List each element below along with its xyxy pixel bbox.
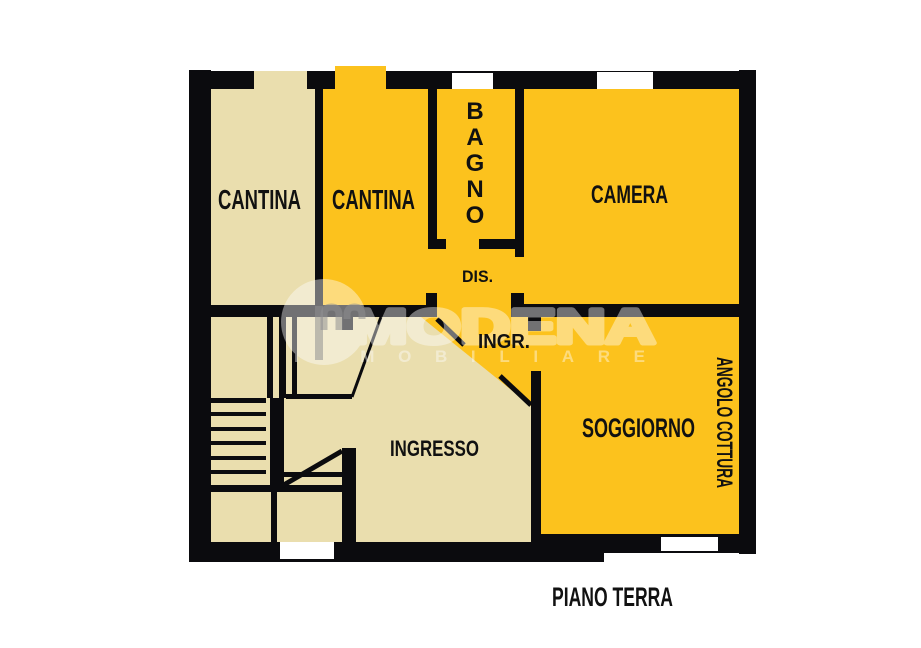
- svg-text:SOGGIORNO: SOGGIORNO: [582, 413, 695, 443]
- svg-text:DIS.: DIS.: [462, 267, 493, 286]
- svg-text:O: O: [466, 202, 485, 229]
- svg-text:CANTINA: CANTINA: [332, 184, 415, 215]
- svg-text:B: B: [466, 98, 483, 125]
- svg-text:G: G: [466, 150, 485, 177]
- svg-text:INGR.: INGR.: [478, 331, 530, 353]
- svg-text:CAMERA: CAMERA: [591, 181, 668, 209]
- svg-text:ANGOLO COTTURA: ANGOLO COTTURA: [712, 357, 737, 488]
- svg-text:INGRESSO: INGRESSO: [390, 436, 479, 461]
- svg-text:CANTINA: CANTINA: [218, 184, 301, 215]
- svg-text:A: A: [466, 124, 483, 151]
- svg-text:PIANO TERRA: PIANO TERRA: [552, 582, 673, 612]
- svg-text:N: N: [466, 176, 483, 203]
